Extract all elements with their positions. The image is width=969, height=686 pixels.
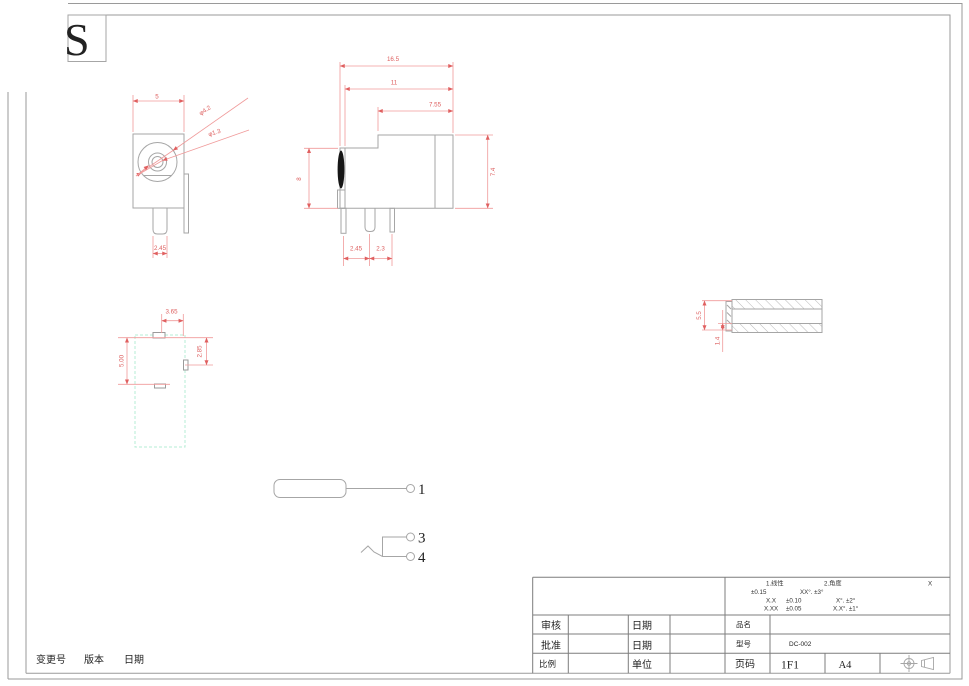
dim-bottom-right: 2.85	[197, 345, 204, 358]
label-change-no: 变更号	[36, 653, 66, 666]
label-review: 审核	[541, 619, 561, 632]
tol-r1a: ±0.15	[751, 589, 767, 596]
title-block: 1.线性 2.角度 X ±0.15 XX°. ±3° X.X ±0.10 X°.…	[533, 577, 950, 673]
label-unit: 单位	[632, 658, 652, 671]
tol-angle-label: 2.角度	[824, 580, 842, 588]
callout-3: 3	[418, 531, 426, 547]
tol-r2b: ±0.10	[786, 598, 802, 605]
bottom-view: 5.00 2.85 3.65	[118, 309, 213, 448]
dim-pitch-245: 2.45	[350, 246, 363, 253]
tol-r2a: X.X	[766, 598, 776, 605]
dim-pin-outer: 5.5	[696, 311, 703, 320]
callout-4: 4	[418, 550, 426, 566]
dim-total-length: 16.5	[387, 56, 400, 63]
spring-contact	[338, 151, 345, 189]
dim-front-width: 5	[155, 94, 159, 101]
label-model: 型号	[736, 640, 751, 649]
dim-pin-wall: 1.4	[715, 336, 722, 345]
dim-pitch-23: 2.3	[376, 246, 385, 253]
label-product: 品名	[736, 619, 751, 629]
dim-len-11: 11	[391, 80, 398, 87]
drawing-canvas: S 5 φ4.2 φ1.3 2.45	[0, 0, 969, 686]
sheet-size-value: A4	[839, 660, 853, 671]
projection-symbol-icon	[901, 655, 934, 672]
dim-bottom-left: 5.00	[119, 354, 126, 367]
side-view: 16.5 11 7.55 8 7.4 2.45 2.3	[296, 56, 497, 266]
label-date1: 日期	[632, 620, 652, 632]
label-approve: 批准	[541, 639, 561, 652]
dim-height-8: 8	[296, 177, 303, 181]
dim-inner-dia: φ1.3	[208, 128, 223, 139]
overlay-letter: S	[64, 14, 90, 65]
tol-r3b: ±0.05	[786, 606, 802, 613]
dim-height-74: 7.4	[490, 167, 497, 176]
revision-bar: 变更号 版本 日期	[36, 653, 144, 666]
tol-r2c: X°. ±2°	[836, 598, 856, 605]
front-view: 5 φ4.2 φ1.3 2.45	[133, 94, 249, 259]
corner-overlay: S	[64, 14, 106, 65]
label-date: 日期	[124, 654, 144, 666]
tol-r1b: XX°. ±3°	[800, 589, 824, 596]
dim-bottom-top: 3.65	[165, 309, 178, 316]
label-date2: 日期	[632, 640, 652, 652]
dim-outer-dia: φ4.2	[198, 104, 213, 117]
tolerance-notes: 1.线性 2.角度 X ±0.15 XX°. ±3° X.X ±0.10 X°.…	[751, 580, 932, 613]
cad-drawing-sheet: S 5 φ4.2 φ1.3 2.45	[0, 0, 969, 686]
tol-linear-label: 1.线性	[766, 580, 784, 588]
part-callouts: 1 3 4	[274, 480, 426, 567]
dim-len-755: 7.55	[429, 102, 442, 109]
label-page: 页码	[735, 659, 755, 671]
tol-r3c: X.X°. ±1°	[833, 606, 859, 613]
model-value: DC-002	[789, 641, 812, 648]
callout-1: 1	[418, 482, 426, 498]
tol-x: X	[928, 581, 932, 588]
label-version: 版本	[84, 653, 104, 666]
tol-r3a: X.XX	[764, 606, 778, 613]
page-value: 1F1	[781, 660, 799, 672]
dim-front-pin: 2.45	[154, 245, 167, 252]
label-scale: 比例	[539, 659, 556, 669]
pin-section-view: 5.5 1.4	[696, 300, 822, 353]
